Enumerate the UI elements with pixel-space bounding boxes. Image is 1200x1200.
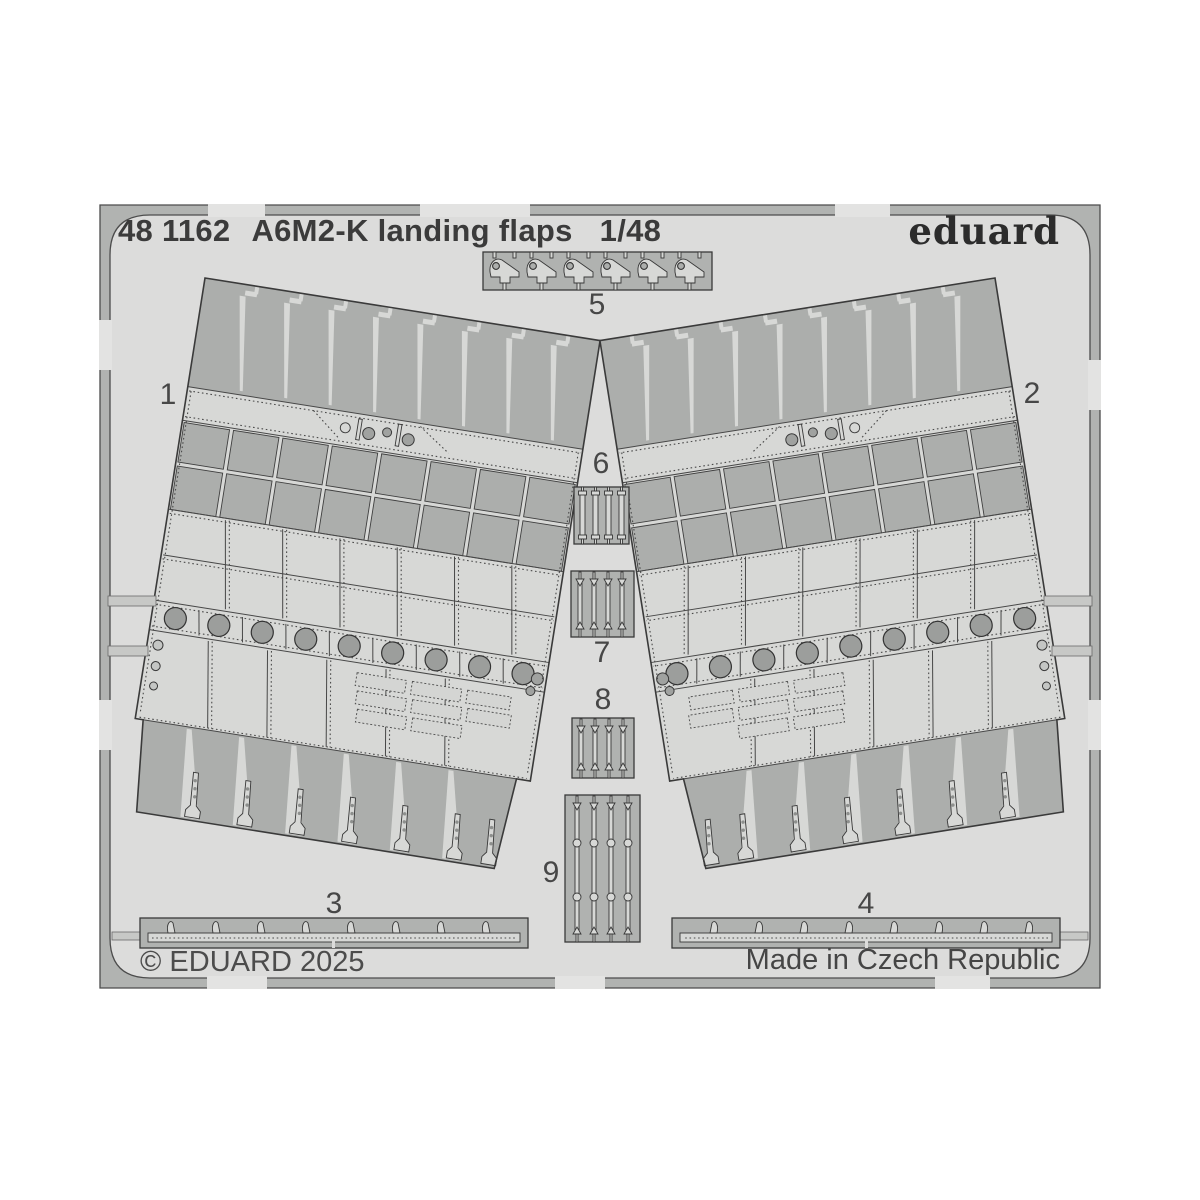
part-9-stiffeners — [565, 795, 640, 942]
part-label-1: 1 — [160, 380, 177, 410]
product-name: A6M2-K landing flaps — [251, 213, 572, 248]
made-in-text: Made in Czech Republic — [746, 946, 1060, 975]
part-8-stiffeners — [572, 718, 634, 778]
part-label-4: 4 — [858, 889, 875, 919]
brand-logo: eduard — [908, 213, 1060, 250]
scale-label: 1/48 — [600, 213, 662, 248]
part-label-2: 2 — [1024, 379, 1041, 409]
sheet-title: 48 1162A6M2-K landing flaps1/48 — [118, 215, 661, 246]
part-6-stiffeners — [574, 487, 629, 544]
catalog-number: 48 1162 — [118, 213, 230, 248]
part-label-6: 6 — [593, 449, 610, 479]
part-5-hinge-brackets — [483, 252, 712, 290]
photoetch-sheet-diagram: 48 1162A6M2-K landing flaps1/48 eduard ©… — [0, 0, 1200, 1200]
part-label-9: 9 — [543, 858, 560, 888]
copyright-text: © EDUARD 2025 — [140, 948, 364, 977]
part-7-stiffeners — [571, 571, 634, 637]
part-label-5: 5 — [589, 290, 606, 320]
part-label-8: 8 — [595, 685, 612, 715]
part-label-3: 3 — [326, 889, 343, 919]
part-label-7: 7 — [594, 638, 611, 668]
fret-artwork — [0, 0, 1200, 1200]
